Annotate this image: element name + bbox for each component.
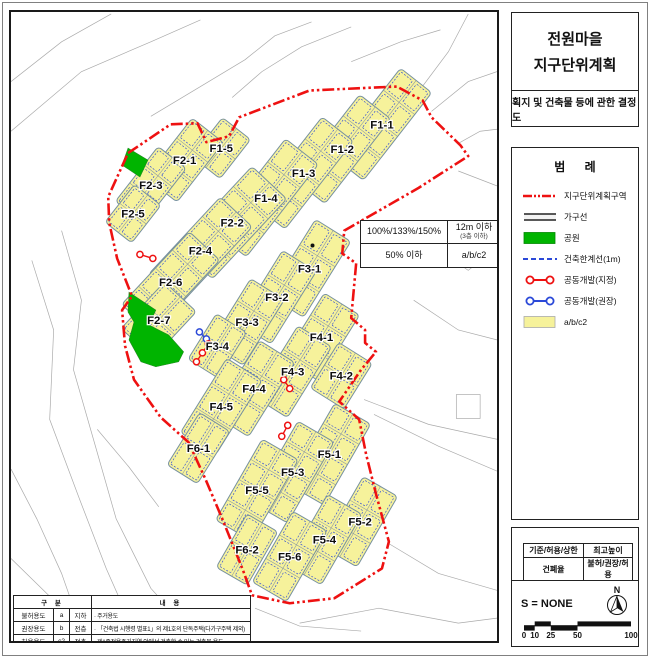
- cadastral-line: [32, 260, 137, 638]
- block-label: F2-2: [220, 218, 243, 230]
- block-label: F5-6: [278, 552, 301, 564]
- use-code-cell: c2: [54, 635, 70, 644]
- coverage-cell: 50% 이하: [361, 244, 448, 267]
- matrix-cell: 최고높이: [584, 544, 633, 558]
- table-row: 허용용도 c2 전층 · 제1종전용주거지역 안에서 건축할 수 있는 건축물 …: [14, 635, 251, 644]
- legend-label: 공동개발(권장): [564, 295, 617, 307]
- block-label: F5-2: [348, 517, 371, 529]
- title-line1: 전원마을: [547, 28, 602, 49]
- block-label: F6-1: [187, 443, 211, 455]
- block-label: F1-1: [370, 119, 394, 131]
- legend-label: 공원: [564, 232, 580, 244]
- svg-text:25: 25: [546, 631, 555, 640]
- matrix-cell: 건폐율: [524, 558, 584, 581]
- zoning-summary-box: 100%/133%/150% 12m 이하 (3층 이하) 50% 이하 a/b…: [360, 220, 499, 268]
- matrix-cell: 기준/허용/상한: [524, 544, 584, 558]
- scale-bar: 0 10 25 50 100: [516, 614, 638, 640]
- use-type-cell: 불허용도: [14, 609, 54, 622]
- legend-item-joint-dev-recommended: 공동개발(권장): [522, 294, 638, 308]
- legend-title: 범 례: [520, 158, 638, 175]
- legend-label: 가구선: [564, 211, 587, 223]
- svg-text:10: 10: [530, 631, 539, 640]
- divider: [512, 580, 638, 581]
- cadastral-parcel: [456, 395, 480, 419]
- use-floor-cell: 지하: [70, 609, 92, 622]
- use-zone-swatch-icon: [522, 315, 558, 329]
- cadastral-line: [11, 14, 111, 82]
- block-label: F4-2: [330, 371, 353, 383]
- cadastral-line: [458, 171, 497, 186]
- table-row: 권장용도 b 전층 · 「건축법 시행령 별표1」의 제1호의 단독주택(다가구…: [14, 622, 251, 635]
- cadastral-line: [389, 544, 497, 591]
- park-swatch-icon: [522, 231, 558, 245]
- cadastral-line: [432, 72, 497, 112]
- svg-text:N: N: [614, 585, 621, 595]
- header-gubun: 구 분: [14, 596, 92, 609]
- block-label: F5-5: [245, 485, 269, 497]
- legend-label: 건축한계선(1m): [564, 253, 621, 265]
- use-desc-cell: · 제1종전용주거지역 안에서 건축할 수 있는 건축물 용도: [92, 635, 251, 644]
- legend-item-district-boundary: 지구단위계획구역: [522, 189, 638, 203]
- plan-subtitle: 획지 및 건축물 등에 관한 결정도: [512, 91, 638, 126]
- block-label: F3-1: [298, 263, 322, 275]
- legend-item-block-line: 가구선: [522, 210, 638, 224]
- joint-dev-designated-icon: [522, 273, 558, 287]
- legend-item-building-limit: 건축한계선(1m): [522, 252, 638, 266]
- max-height-value: 12m 이하: [456, 223, 493, 233]
- max-height-cell: 12m 이하 (3층 이하): [448, 221, 499, 244]
- criteria-matrix: 기준/허용/상한 최고높이 건폐율 불허/권장/허용: [523, 543, 633, 581]
- legend-panel: 범 례 지구단위계획구역 가구선 공원 건축한계선(1: [511, 147, 639, 520]
- block-label: F3-4: [206, 341, 230, 353]
- table-header-row: 구 분 내 용: [14, 596, 251, 609]
- title-line2: 지구단위계획: [534, 54, 617, 75]
- block-line-icon: [522, 210, 558, 224]
- use-desc-cell: · 「건축법 시행령 별표1」의 제1호의 단독주택(다가구주택 제외): [92, 622, 251, 635]
- table-row: 불허용도 a 지하 · 주거용도: [14, 609, 251, 622]
- cadastral-line: [300, 608, 497, 623]
- block-label: F5-1: [318, 449, 342, 461]
- matrix-cell: 불허/권장/허용: [584, 558, 633, 581]
- legend-item-joint-dev-designated: 공동개발(지정): [522, 273, 638, 287]
- map-dot: [311, 244, 315, 248]
- use-floor-cell: 전층: [70, 635, 92, 644]
- legend-item-park: 공원: [522, 231, 638, 245]
- building-limit-line-icon: [522, 252, 558, 266]
- max-height-sub: (3층 이하): [460, 233, 488, 240]
- block-label: F1-4: [254, 193, 278, 205]
- block-label: F2-5: [121, 209, 145, 221]
- block-label: F5-3: [281, 467, 304, 479]
- block-label: F1-3: [292, 168, 315, 180]
- svg-text:0: 0: [522, 631, 527, 640]
- use-type-cell: 허용용도: [14, 635, 54, 644]
- use-type-cell: 권장용도: [14, 622, 54, 635]
- block-label: F1-5: [210, 143, 234, 155]
- block-label: F2-7: [147, 315, 170, 327]
- legend-label: a/b/c2: [564, 317, 587, 327]
- use-floor-cell: 전층: [70, 622, 92, 635]
- block-label: F6-2: [235, 545, 258, 557]
- plan-map: F1-1F1-2F1-3F1-4F1-5F2-1F2-3F2-5F2-2F2-4…: [11, 12, 497, 641]
- svg-text:50: 50: [573, 631, 582, 640]
- header-naeyong: 내 용: [92, 596, 251, 609]
- cadastral-line: [97, 429, 158, 507]
- legend-label: 지구단위계획구역: [564, 190, 627, 202]
- block-label: F4-4: [242, 384, 266, 396]
- title-panel: 전원마을 지구단위계획 획지 및 건축물 등에 관한 결정도: [511, 12, 639, 127]
- plan-title: 전원마을 지구단위계획: [512, 13, 638, 91]
- use-code-cell: a: [54, 609, 70, 622]
- block-label: F2-6: [159, 277, 182, 289]
- joint-dev-recommended-icon: [522, 294, 558, 308]
- legend-label: 공동개발(지정): [564, 274, 617, 286]
- block-label: F2-4: [189, 245, 213, 257]
- uses-cell: a/b/c2: [448, 244, 499, 267]
- use-code-cell: b: [54, 622, 70, 635]
- block-label: F1-2: [331, 144, 354, 156]
- cadastral-line: [374, 414, 497, 471]
- north-arrow-icon: N: [602, 584, 632, 618]
- cadastral-line: [414, 300, 497, 340]
- cadastral-line: [232, 27, 351, 98]
- block-label: F4-1: [310, 332, 334, 344]
- district-boundary-line-icon: [522, 189, 558, 203]
- cadastral-line: [11, 20, 200, 131]
- scale-none-text: S = NONE: [521, 598, 573, 610]
- block-label: F3-3: [235, 317, 258, 329]
- block-label: F2-3: [139, 180, 162, 192]
- use-regulation-table: 구 분 내 용 불허용도 a 지하 · 주거용도 권장용도 b 전층 · 「건축…: [13, 595, 251, 643]
- legend-item-use-zone: a/b/c2: [522, 315, 638, 329]
- svg-text:100: 100: [624, 631, 638, 640]
- plan-map-panel: F1-1F1-2F1-3F1-4F1-5F2-1F2-3F2-5F2-2F2-4…: [9, 10, 499, 643]
- floor-area-ratio-cell: 100%/133%/150%: [361, 221, 448, 244]
- block-label: F4-5: [210, 401, 234, 413]
- plan-sheet: F1-1F1-2F1-3F1-4F1-5F2-1F2-3F2-5F2-2F2-4…: [0, 0, 650, 659]
- info-panel: 기준/허용/상한 최고높이 건폐율 불허/권장/허용 S = NONE N 0 …: [511, 527, 639, 647]
- block-label: F5-4: [313, 535, 337, 547]
- block-label: F4-3: [281, 367, 304, 379]
- cadastral-line: [419, 14, 469, 92]
- cadastral-line: [351, 30, 440, 62]
- use-desc-cell: · 주거용도: [92, 609, 251, 622]
- block-label: F2-1: [173, 155, 197, 167]
- block-label: F3-2: [265, 292, 288, 304]
- cadastral-line: [255, 608, 361, 631]
